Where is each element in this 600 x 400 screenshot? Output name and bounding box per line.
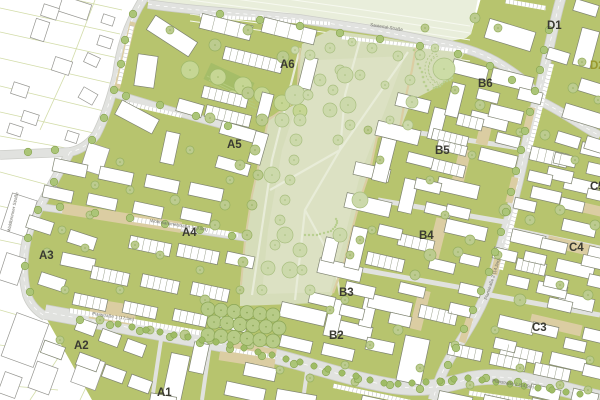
svg-text:A3: A3	[39, 250, 54, 262]
svg-text:B6: B6	[478, 78, 493, 90]
svg-text:D1: D1	[547, 20, 562, 32]
svg-text:A1: A1	[157, 387, 172, 399]
svg-text:A6: A6	[280, 59, 295, 71]
svg-text:B2: B2	[329, 330, 344, 342]
svg-text:C5: C5	[590, 181, 600, 193]
svg-text:C4: C4	[569, 242, 584, 254]
svg-text:D2: D2	[590, 60, 600, 72]
svg-text:A2: A2	[74, 340, 89, 352]
svg-text:B3: B3	[339, 287, 354, 299]
svg-text:A5: A5	[227, 139, 242, 151]
svg-text:C3: C3	[532, 322, 547, 334]
svg-text:B4: B4	[419, 230, 434, 242]
svg-text:B5: B5	[435, 145, 450, 157]
